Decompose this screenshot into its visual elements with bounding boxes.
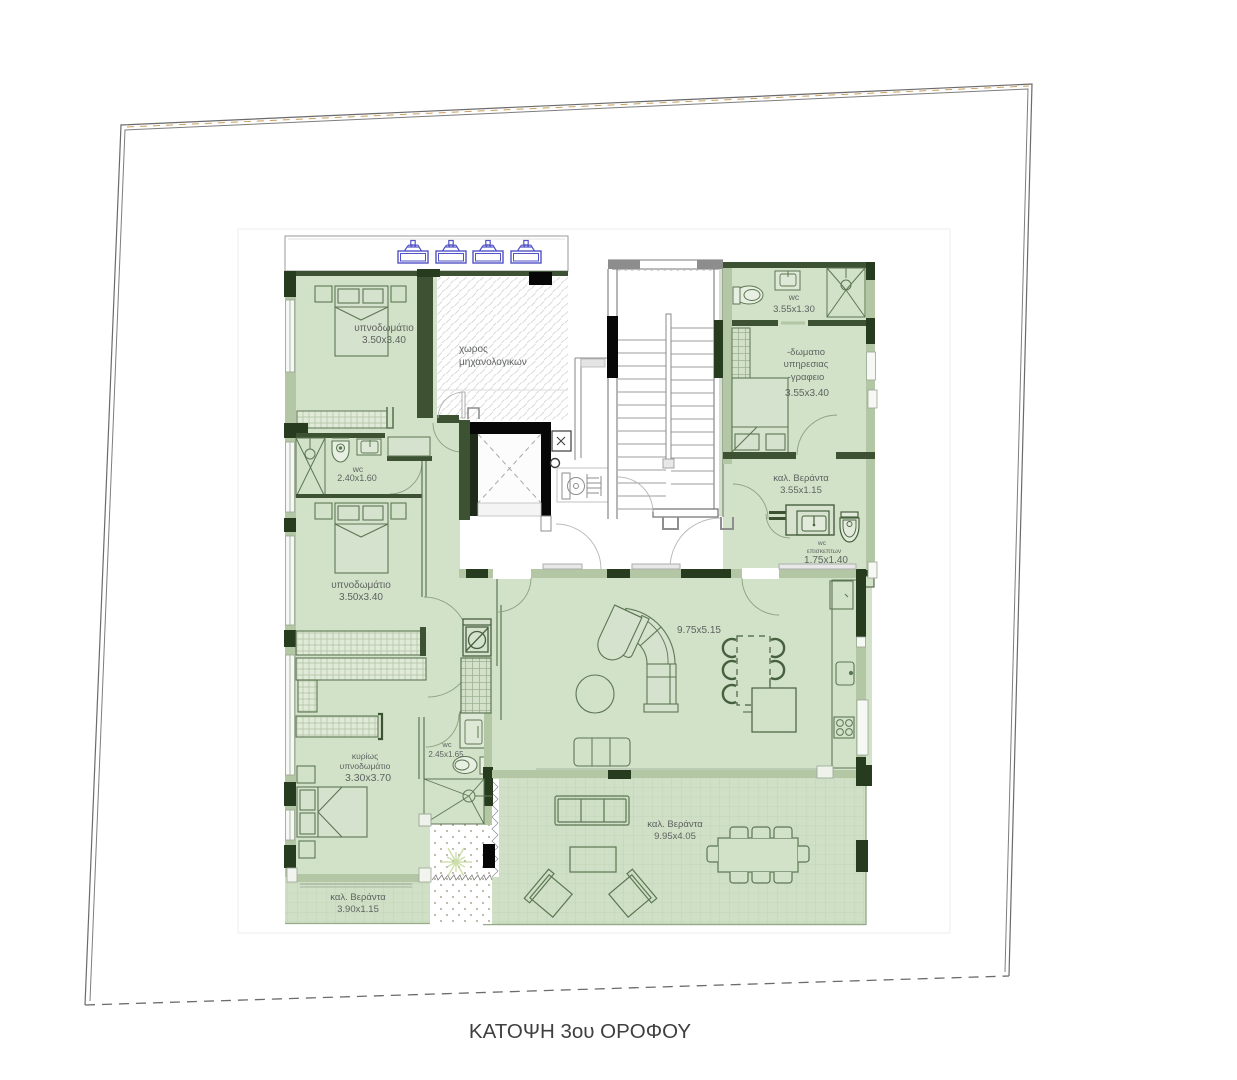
- svg-text:2.45x1.65: 2.45x1.65: [428, 750, 464, 759]
- svg-text:-δωματιο: -δωματιο: [787, 347, 825, 358]
- svg-text:wc: wc: [817, 540, 827, 547]
- svg-text:χωρος: χωρος: [459, 344, 488, 355]
- svg-text:1.75x1.40: 1.75x1.40: [804, 555, 848, 566]
- svg-text:3.50x3.40: 3.50x3.40: [339, 592, 383, 603]
- svg-text:καλ. Βεράντα: καλ. Βεράντα: [647, 819, 703, 830]
- svg-text:υπνοδωμάτιο: υπνοδωμάτιο: [354, 322, 414, 334]
- svg-text:3.50x3.40: 3.50x3.40: [362, 335, 406, 346]
- svg-text:3.55x1.15: 3.55x1.15: [780, 485, 822, 496]
- svg-text:ΚΑΤΟΨΗ 3ου ΟΡΟΦΟΥ: ΚΑΤΟΨΗ 3ου ΟΡΟΦΟΥ: [469, 1020, 691, 1043]
- svg-text:2.40x1.60: 2.40x1.60: [337, 473, 377, 483]
- svg-text:3.55x1.30: 3.55x1.30: [773, 304, 815, 315]
- svg-text:3.55x3.40: 3.55x3.40: [785, 388, 829, 399]
- svg-text:υπνοδωμάτιο: υπνοδωμάτιο: [331, 579, 391, 591]
- svg-text:καλ. Βεράντα: καλ. Βεράντα: [330, 892, 386, 903]
- svg-text:wc: wc: [441, 740, 451, 749]
- svg-text:-γραφειο: -γραφειο: [788, 372, 825, 383]
- svg-text:9.75x5.15: 9.75x5.15: [677, 625, 721, 636]
- svg-text:wc: wc: [788, 292, 800, 302]
- svg-text:μηχανολογικων: μηχανολογικων: [459, 357, 527, 368]
- svg-text:κυρίως: κυρίως: [352, 751, 378, 761]
- svg-text:3.90x1.15: 3.90x1.15: [337, 904, 379, 915]
- svg-text:υπηρεσιας: υπηρεσιας: [784, 359, 829, 370]
- svg-text:9.95x4.05: 9.95x4.05: [654, 831, 696, 842]
- svg-text:καλ. Βεράντα: καλ. Βεράντα: [773, 473, 829, 484]
- svg-text:επισκεπτων: επισκεπτων: [807, 548, 841, 555]
- svg-text:υπνοδωμάτιο: υπνοδωμάτιο: [340, 761, 391, 771]
- svg-text:3.30x3.70: 3.30x3.70: [345, 772, 391, 784]
